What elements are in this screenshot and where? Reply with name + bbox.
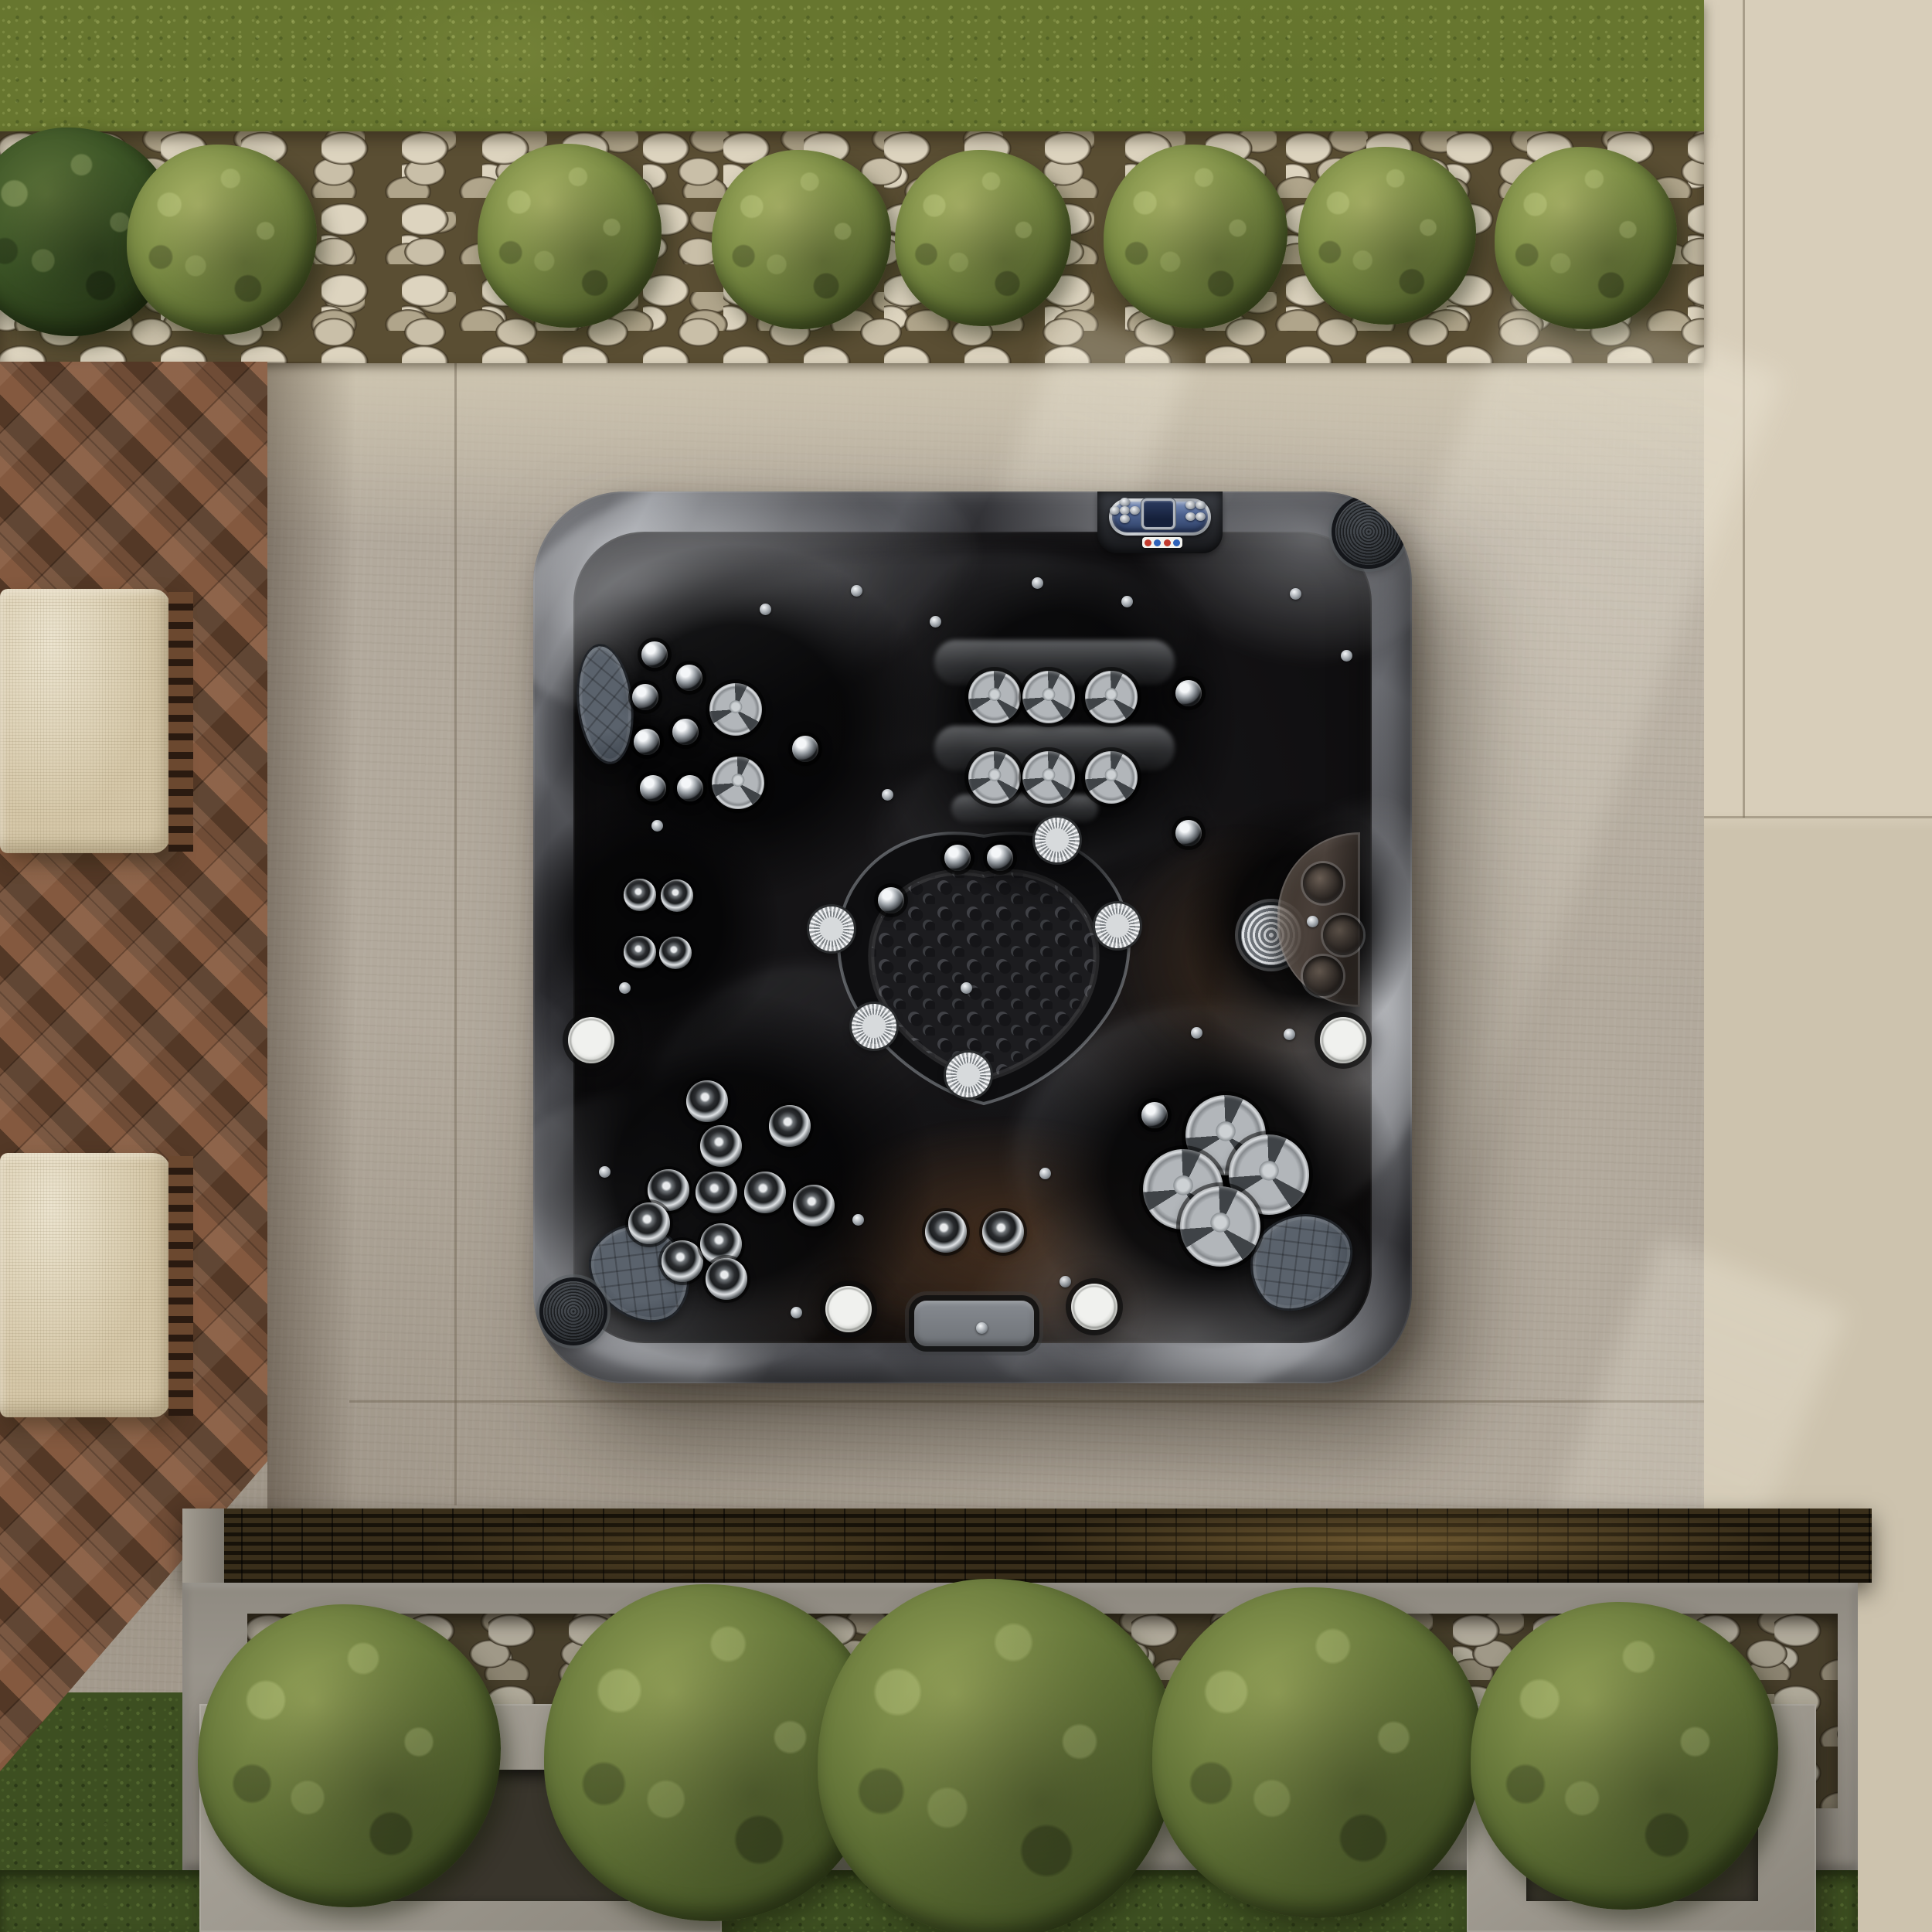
massage-jet-medium-3 (968, 671, 1021, 723)
massage-jet-wall-1 (624, 879, 656, 911)
lounger-jet-bar-3 (951, 794, 1098, 822)
massage-jet-small-13 (987, 845, 1013, 871)
cup-holder-1 (1303, 863, 1343, 903)
backyard-scene (0, 0, 1932, 1932)
underwater-light-2 (1320, 1017, 1366, 1063)
massage-jet-small-6 (677, 775, 703, 801)
massage-jet-medium-5 (1085, 671, 1138, 723)
air-injector-15 (882, 789, 893, 801)
bush-top-2 (127, 145, 317, 335)
speaker-2 (543, 1281, 604, 1342)
bush-bottom-5 (1471, 1602, 1778, 1910)
cup-holder-3 (1303, 956, 1343, 996)
air-injector-5 (1121, 596, 1133, 607)
panel-button (1120, 506, 1130, 515)
control-panel (1097, 492, 1223, 553)
underwater-light-1 (568, 1017, 614, 1063)
lcd-display (1144, 501, 1173, 527)
massage-jet-small-14 (1141, 1102, 1168, 1128)
air-injector-11 (791, 1307, 802, 1318)
air-injector-9 (619, 982, 631, 994)
air-injector-14 (1307, 916, 1318, 927)
massage-jet-small-10 (1175, 820, 1202, 846)
warning-icon (1173, 539, 1180, 546)
massage-jet-ring-2 (700, 1125, 742, 1167)
air-control-knob-5 (946, 1053, 991, 1097)
air-injector-6 (1290, 588, 1301, 600)
massage-jet-wall-3 (624, 936, 656, 968)
air-injector-19 (852, 1214, 864, 1226)
warning-icon (1164, 539, 1171, 546)
air-injector-17 (1039, 1168, 1051, 1179)
air-control-knob-3 (1095, 903, 1140, 948)
patio-seam-vertical (454, 362, 457, 1505)
air-control-knob-4 (852, 1004, 896, 1049)
tub-features (533, 492, 1412, 1383)
air-control-knob-2 (809, 906, 854, 951)
massage-jet-ring-9 (706, 1258, 747, 1300)
massage-jet-ring-6 (628, 1202, 670, 1244)
bush-top-5 (895, 150, 1071, 326)
massage-jet-small-11 (878, 887, 904, 913)
bench-concrete-cap (182, 1509, 224, 1583)
air-injector-8 (651, 820, 663, 832)
panel-button (1185, 501, 1196, 509)
bush-bottom-1 (198, 1604, 501, 1907)
filter-skimmer-lid (914, 1301, 1034, 1346)
massage-jet-small-4 (672, 719, 699, 745)
massage-jet-wall-4 (659, 937, 692, 969)
massage-jet-ring-4 (696, 1172, 737, 1213)
air-injector-12 (1060, 1276, 1071, 1287)
deck-shadow (267, 362, 356, 1513)
massage-jet-small-8 (792, 736, 818, 762)
panel-button (1120, 498, 1130, 506)
panel-button (1110, 506, 1120, 515)
massage-jet-ring-7 (662, 1240, 703, 1282)
patio-seam-horizontal (349, 1400, 1704, 1403)
massage-jet-medium-7 (1022, 751, 1075, 804)
massage-jet-large-4 (1180, 1186, 1260, 1267)
air-injector-10 (599, 1166, 611, 1178)
air-injector-7 (1341, 650, 1352, 662)
speaker-1 (1335, 498, 1402, 565)
bush-top-8 (1495, 147, 1677, 329)
panel-button (1196, 512, 1206, 521)
massage-jet-small-9 (1175, 680, 1202, 706)
massage-jet-medium-1 (709, 683, 762, 736)
slatted-bench (182, 1509, 1872, 1583)
air-injector-16 (961, 982, 972, 994)
massage-jet-small-5 (634, 729, 660, 755)
massage-jet-small-1 (641, 641, 668, 668)
massage-jet-ring-10 (769, 1105, 811, 1147)
lounger-cushion-top (0, 589, 170, 853)
air-injector-20 (976, 1322, 988, 1334)
cup-holder-2 (1323, 915, 1363, 955)
massage-jet-ring-11 (793, 1185, 835, 1226)
panel-button (1130, 506, 1140, 515)
panel-button (1120, 515, 1130, 523)
air-control-knob-1 (1035, 818, 1080, 862)
massage-jet-ring-12 (925, 1211, 967, 1253)
massage-jet-ring-13 (982, 1211, 1024, 1253)
massage-jet-small-7 (640, 775, 666, 801)
bush-bottom-3 (818, 1579, 1177, 1932)
air-injector-2 (851, 585, 862, 597)
massage-jet-medium-4 (1022, 671, 1075, 723)
massage-jet-medium-8 (1085, 751, 1138, 804)
warning-icon (1154, 539, 1161, 546)
bush-top-4 (712, 150, 891, 329)
bush-bottom-4 (1152, 1587, 1483, 1918)
air-injector-3 (930, 616, 941, 628)
lounger-slats-top (168, 592, 193, 852)
bush-top-7 (1298, 147, 1476, 325)
bush-top-6 (1104, 145, 1287, 328)
panel-button (1185, 512, 1196, 521)
massage-jet-small-2 (676, 665, 702, 691)
massage-jet-small-12 (944, 845, 971, 871)
lounger-cushion-bottom (0, 1153, 170, 1417)
massage-jet-small-3 (632, 684, 658, 710)
hot-tub (533, 492, 1412, 1383)
warning-sticker (1142, 537, 1182, 548)
air-injector-1 (760, 604, 771, 615)
bush-top-3 (478, 144, 662, 328)
massage-jet-medium-6 (968, 751, 1021, 804)
massage-jet-ring-1 (686, 1080, 728, 1122)
warning-icon (1145, 539, 1151, 546)
underwater-light-3 (825, 1286, 872, 1332)
underwater-light-4 (1071, 1284, 1117, 1330)
panel-button (1196, 501, 1206, 509)
massage-jet-ring-5 (744, 1172, 786, 1213)
massage-jet-wall-2 (661, 879, 693, 912)
lounger-slats-bottom (168, 1156, 193, 1416)
air-injector-18 (1191, 1027, 1202, 1039)
lawn-top (0, 0, 1704, 133)
air-injector-13 (1284, 1029, 1295, 1040)
air-injector-4 (1032, 577, 1043, 589)
massage-jet-medium-2 (712, 757, 764, 809)
